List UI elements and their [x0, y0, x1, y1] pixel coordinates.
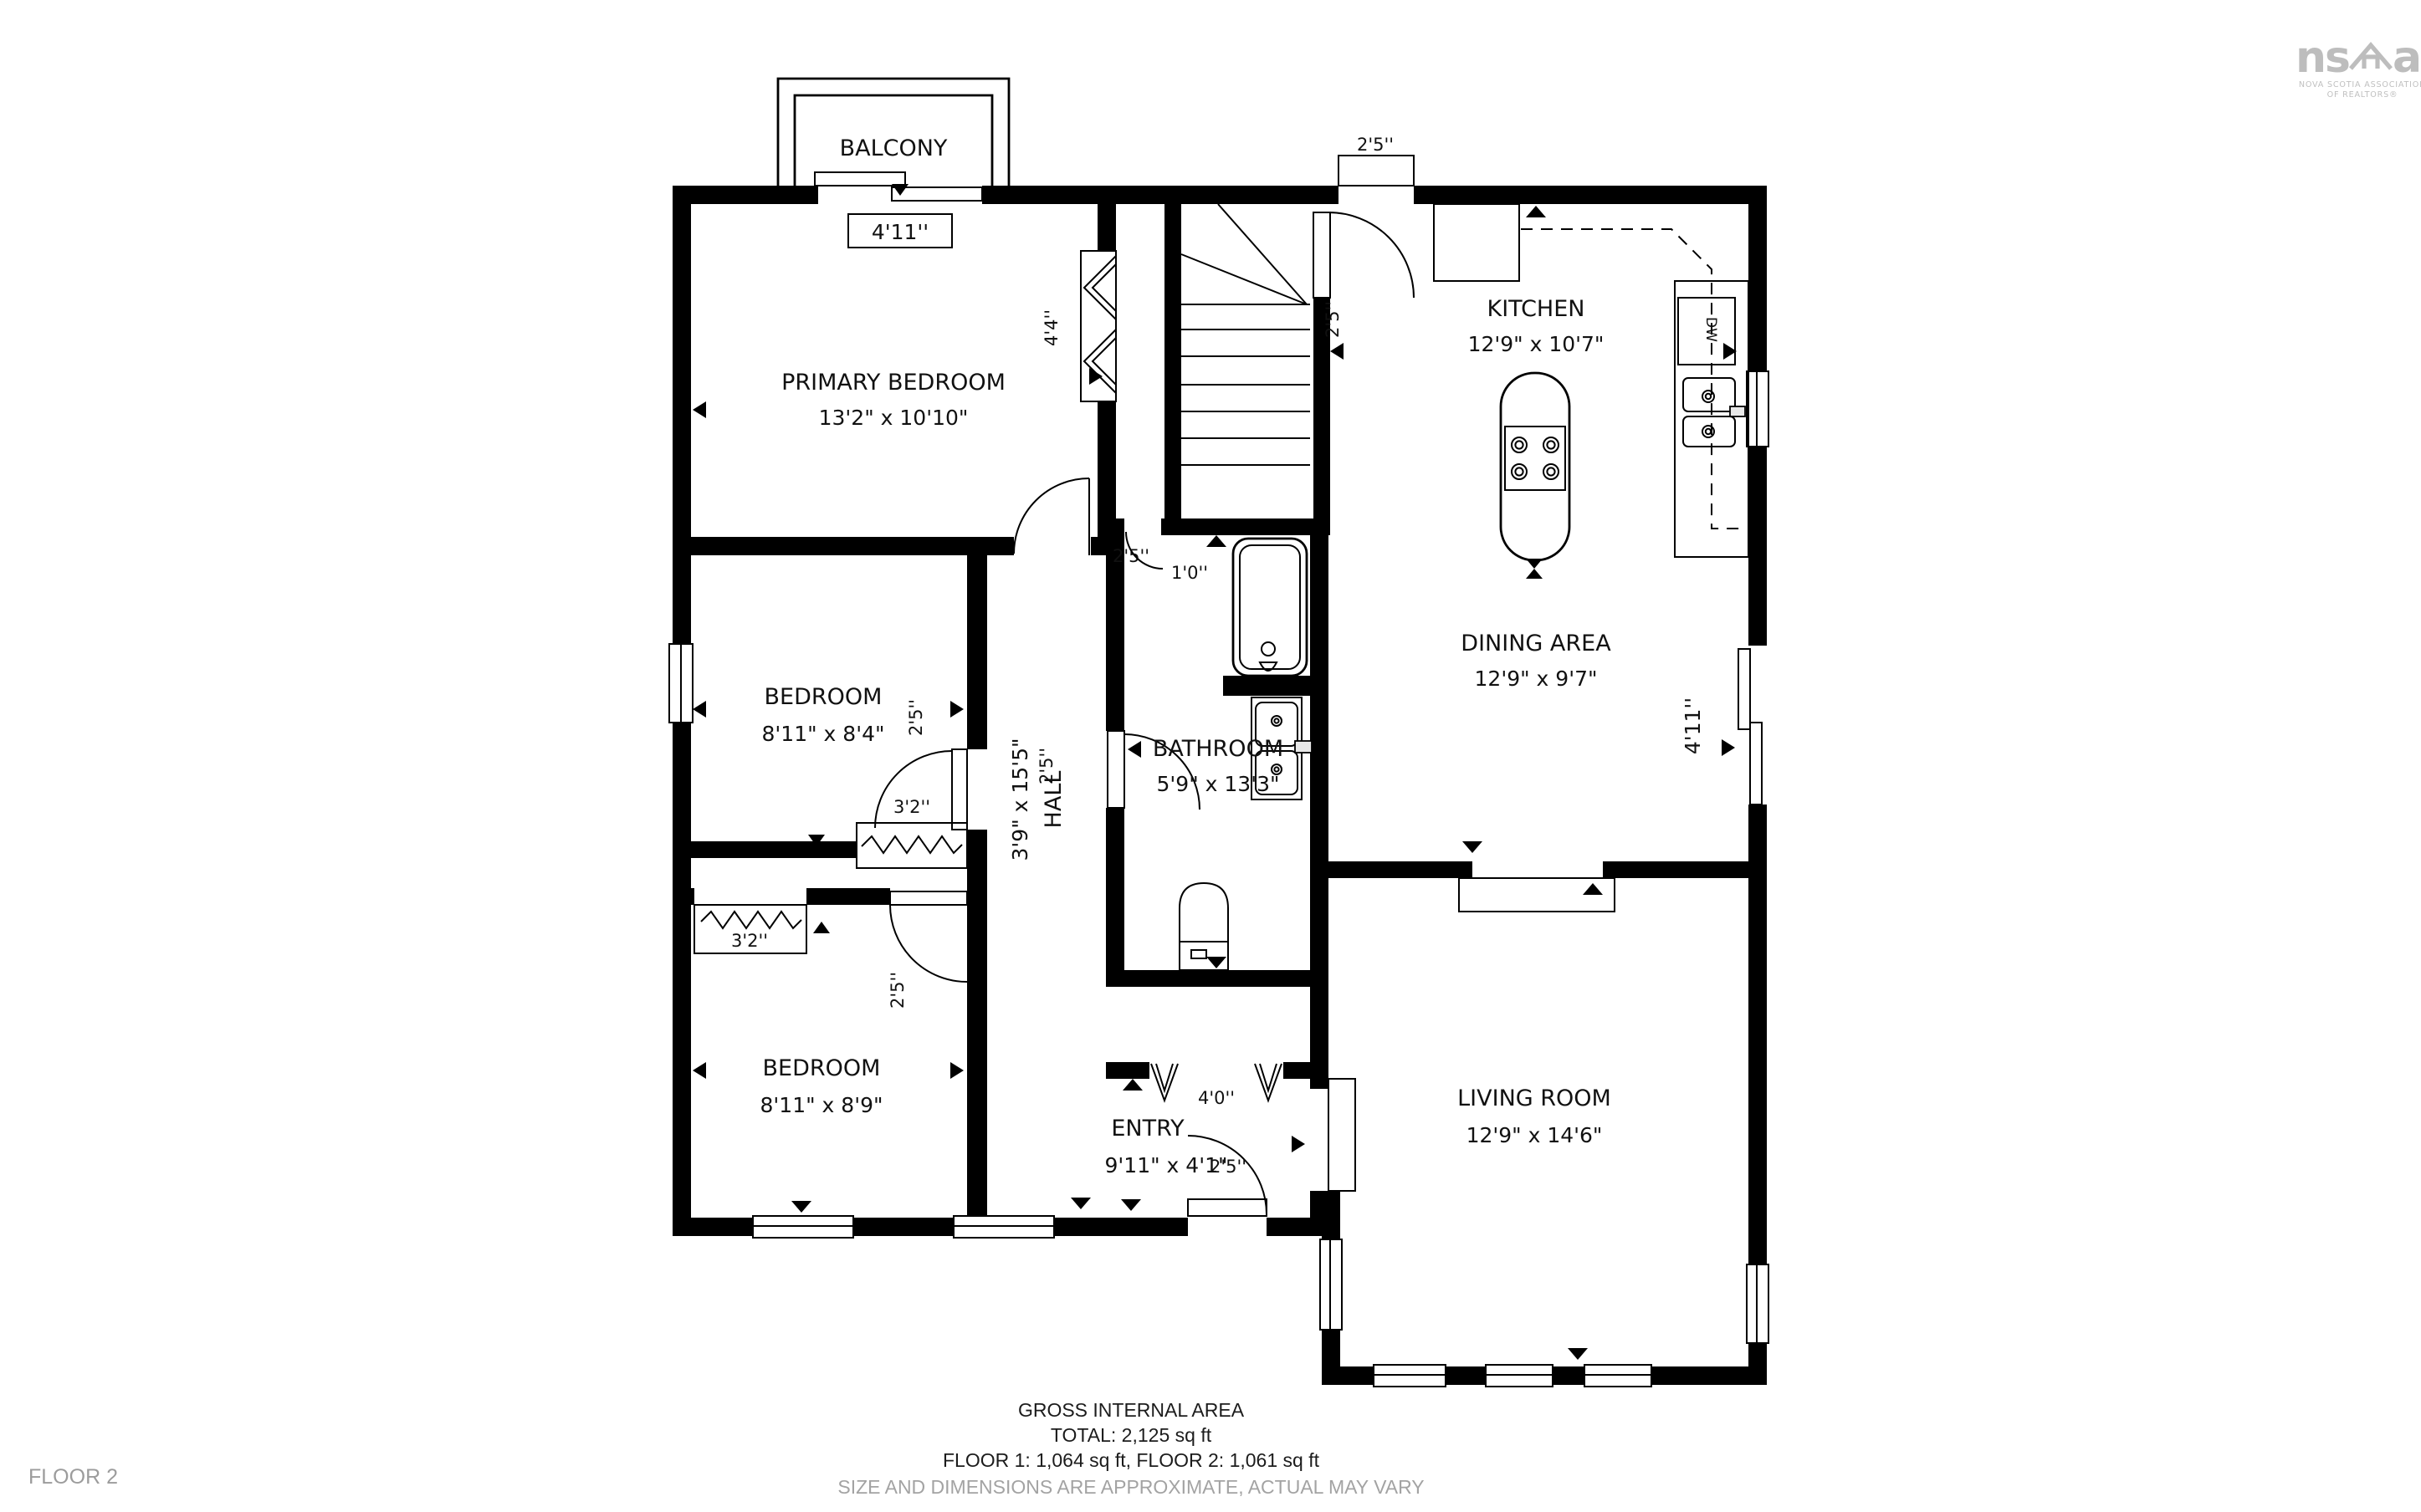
window [1747, 1264, 1768, 1343]
burner [1543, 464, 1559, 479]
logo-tagline-1: NOVA SCOTIA ASSOCIATION [2299, 80, 2421, 89]
floor-plan-page: BALCONY 4'11'' 4'11'' 2'5'' [0, 0, 2421, 1512]
primary-bedroom-dims: 13'2" x 10'10" [819, 406, 969, 430]
bathtub-rim [1240, 545, 1300, 669]
balcony-slider-dim: 4'11'' [872, 220, 929, 244]
burner [1512, 464, 1527, 479]
balcony-slider-panel [892, 187, 982, 201]
burner [1512, 437, 1527, 452]
kitchen-fixtures: DW [1434, 204, 1748, 579]
dining-label: DINING AREA [1461, 631, 1611, 656]
stair-winders [1181, 204, 1307, 304]
sink-drain [1702, 391, 1714, 402]
entry-label: ENTRY [1111, 1116, 1185, 1142]
bedroom1-label: BEDROOM [765, 684, 883, 710]
logo-mark-left: ns [2296, 33, 2349, 83]
bedroom1-door-dim: 2'5'' [906, 699, 926, 736]
kitchen-top-door-frame [1338, 156, 1414, 186]
living-label: LIVING ROOM [1457, 1085, 1611, 1111]
bedroom2-dims: 8'11" x 8'9" [760, 1093, 883, 1117]
vanity-faucet [1295, 741, 1312, 753]
entry-closet-dim: 4'0'' [1198, 1088, 1235, 1108]
room-labels: PRIMARY BEDROOM 13'2" x 10'10" BEDROOM 8… [760, 296, 1612, 1177]
hall-dims: 3'9" x 15'5" [1008, 738, 1032, 861]
toilet-bowl [1180, 883, 1228, 942]
bedroom2-door-dim: 2'5'' [888, 972, 908, 1009]
window [1486, 1365, 1553, 1387]
kitchen-top-door-dim: 2'5'' [1357, 135, 1394, 155]
bedroom1-door-leaf [952, 749, 967, 830]
bedroom1-dims: 8'11" x 8'4" [762, 722, 885, 746]
primary-closet-dim: 4'4'' [1042, 309, 1062, 346]
stair-treads [1181, 304, 1310, 465]
primary-door-swing [1014, 478, 1089, 554]
dishwasher-label: DW [1702, 317, 1719, 342]
balcony-label: BALCONY [840, 135, 948, 161]
living-dims: 12'9" x 14'6" [1466, 1123, 1603, 1147]
kitchen-dims: 12'9" x 10'7" [1468, 332, 1605, 356]
entry-living-opening [1328, 1079, 1355, 1191]
entry-dims: 9'11" x 4'1" [1105, 1153, 1228, 1177]
sliding-door: 4'11'' [1681, 649, 1762, 805]
window [753, 1216, 853, 1238]
stair-door-swing [1328, 212, 1414, 298]
footer-total: TOTAL: 2,125 sq ft [1051, 1424, 1212, 1446]
closets: 3'2'' 3'2'' [694, 797, 967, 953]
floor-label: FLOOR 2 [28, 1465, 118, 1489]
bedroom2-door-frame [890, 891, 967, 905]
entry-door-frame [1188, 1199, 1267, 1216]
linen-door-dim: 1'0'' [1171, 563, 1208, 583]
bathroom-door-leaf [1108, 731, 1124, 808]
closet-rail-icon [862, 836, 962, 853]
balcony: BALCONY 4'11'' [778, 79, 1009, 248]
toilet-button [1191, 950, 1206, 958]
hall-label: HALL [1041, 771, 1067, 829]
fridge-counter [1434, 204, 1519, 281]
logo-house-icon [2351, 45, 2391, 69]
vanity-drain [1272, 716, 1282, 726]
closet-rail-icon [701, 912, 801, 928]
sink-faucet [1730, 406, 1745, 416]
kitchen-label: KITCHEN [1487, 296, 1585, 322]
tub-drain [1262, 642, 1275, 656]
footer-area-title: GROSS INTERNAL AREA [1018, 1399, 1245, 1421]
stair-door-dim: 2'5'' [1323, 301, 1343, 338]
logo-tagline-2: OF REALTORS® [2327, 90, 2398, 100]
stove [1505, 427, 1565, 490]
toilet-tank [1180, 942, 1228, 970]
window [1320, 1239, 1342, 1330]
window [954, 1216, 1054, 1238]
footer-disclaimer: SIZE AND DIMENSIONS ARE APPROXIMATE, ACT… [837, 1476, 1424, 1498]
window [1374, 1365, 1446, 1387]
footer: GROSS INTERNAL AREA TOTAL: 2,125 sq ft F… [837, 1399, 1424, 1498]
bedroom2-label: BEDROOM [763, 1055, 881, 1081]
window [1584, 1365, 1651, 1387]
nsar-logo: ns aR NOVA SCOTIA ASSOCIATION OF REALTOR… [2296, 33, 2421, 100]
bathroom-dims: 5'9" x 13'3" [1157, 772, 1280, 796]
window [1747, 371, 1768, 447]
kitchen-island [1501, 373, 1569, 560]
stair-door-leaf [1313, 212, 1330, 298]
footer-floors: FLOOR 1: 1,064 sq ft, FLOOR 2: 1,061 sq … [943, 1449, 1320, 1471]
logo-mark-right: aR [2393, 33, 2421, 83]
balcony-slider-panel [815, 172, 905, 186]
dining-dims: 12'9" x 9'7" [1475, 667, 1598, 691]
bedroom2-closet-dim: 3'2'' [731, 931, 768, 951]
window [669, 644, 693, 723]
primary-bedroom-label: PRIMARY BEDROOM [781, 370, 1006, 396]
bedroom1-closet-dim: 3'2'' [893, 797, 930, 817]
floor-plan-canvas: BALCONY 4'11'' 4'11'' 2'5'' [0, 0, 2421, 1512]
bathroom-label: BATHROOM [1153, 736, 1283, 762]
bedroom2-door-swing [890, 905, 967, 982]
kitchen-sink-basin [1683, 416, 1735, 447]
island-faucet-icon [1526, 559, 1543, 579]
dining-slider-dim: 4'11'' [1681, 697, 1705, 754]
staircase [1181, 204, 1310, 465]
burner [1543, 437, 1559, 452]
